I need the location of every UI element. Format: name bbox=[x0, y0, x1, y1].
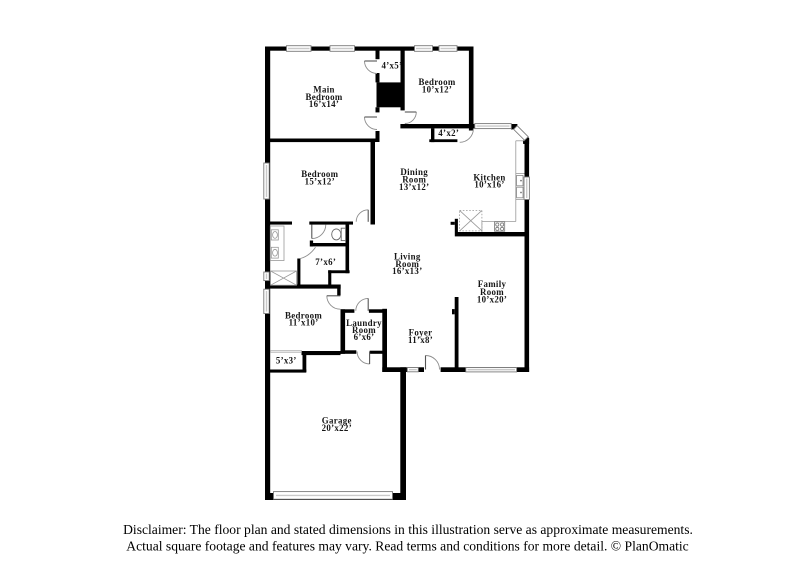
svg-text:16’x13’: 16’x13’ bbox=[392, 266, 422, 276]
svg-text:20’x22’: 20’x22’ bbox=[322, 423, 352, 433]
svg-text:Actual square footage and feat: Actual square footage and features may v… bbox=[126, 539, 688, 554]
svg-text:10’x12’: 10’x12’ bbox=[422, 85, 452, 95]
svg-text:Disclaimer: The floor plan and: Disclaimer: The floor plan and stated di… bbox=[123, 522, 693, 537]
svg-text:6’x6’: 6’x6’ bbox=[354, 332, 375, 342]
svg-text:11’x10’: 11’x10’ bbox=[289, 318, 319, 328]
svg-text:10’x20’: 10’x20’ bbox=[477, 294, 507, 304]
svg-text:4’x5’: 4’x5’ bbox=[381, 61, 402, 71]
svg-text:5’x3’: 5’x3’ bbox=[276, 356, 297, 366]
svg-text:13’x12’: 13’x12’ bbox=[399, 182, 429, 192]
svg-text:16’x14’: 16’x14’ bbox=[309, 99, 339, 109]
svg-text:15’x12’: 15’x12’ bbox=[305, 176, 335, 186]
svg-text:7’x6’: 7’x6’ bbox=[315, 257, 336, 267]
svg-text:4’x2’: 4’x2’ bbox=[438, 128, 459, 138]
svg-text:11’x8’: 11’x8’ bbox=[408, 335, 433, 345]
svg-text:10’x16’: 10’x16’ bbox=[474, 179, 504, 189]
